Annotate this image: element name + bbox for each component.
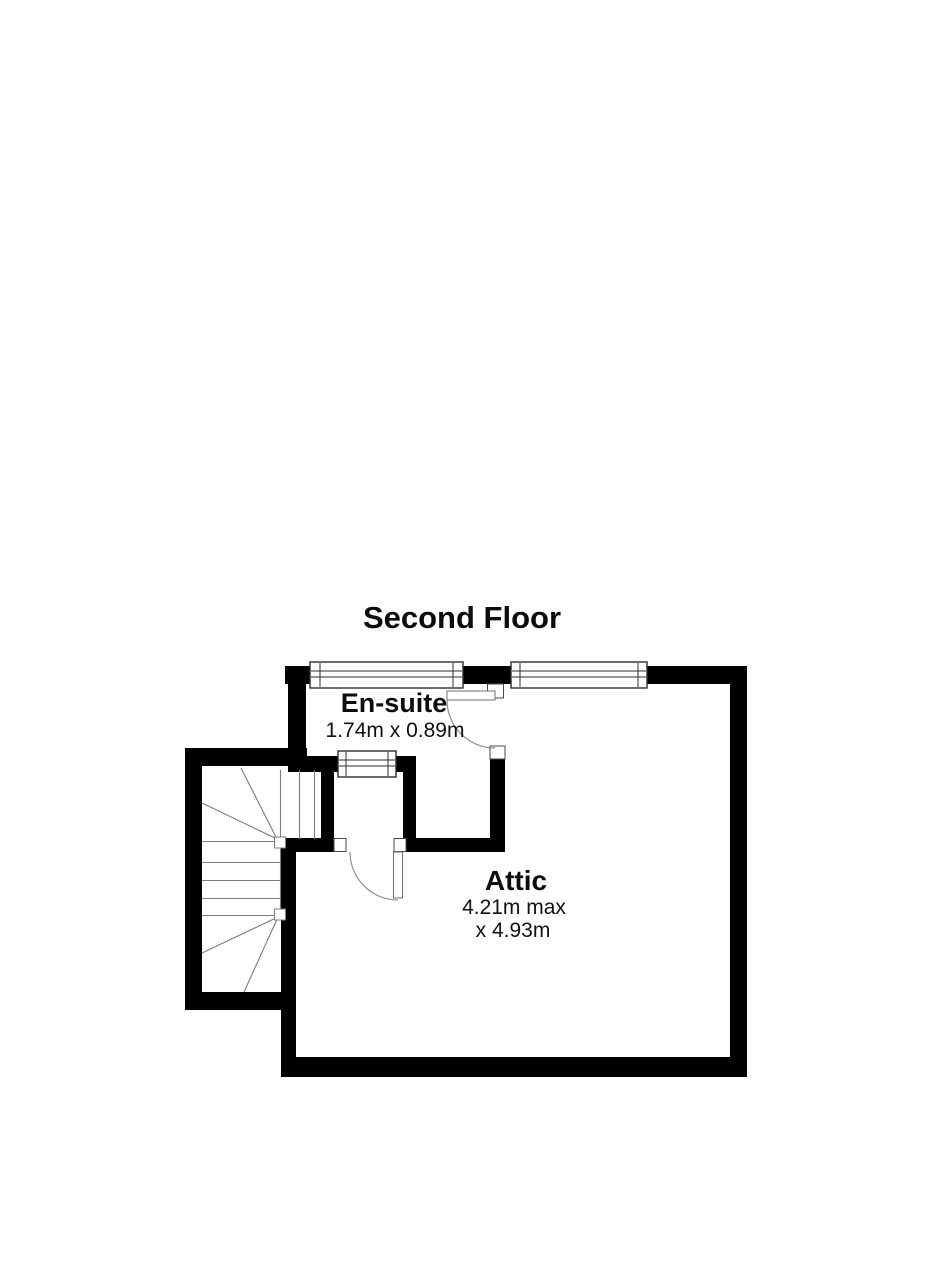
newel-post-lower	[275, 909, 286, 920]
staircase	[202, 768, 315, 992]
newel-post-upper	[275, 837, 286, 848]
attic-dimensions-line2: x 4.93m	[476, 919, 551, 942]
wall-attic-west	[281, 838, 296, 1077]
wall-horizontal-left-seg	[281, 838, 334, 852]
landing-door-arc	[350, 852, 398, 900]
window-top-left	[310, 662, 463, 688]
wall-right	[730, 666, 747, 1077]
wall-stair-left	[185, 748, 202, 1010]
attic-name: Attic	[485, 865, 547, 896]
window-landing	[338, 751, 396, 777]
wall-landing-right	[403, 766, 416, 842]
landing-door-left-jamb	[334, 839, 346, 852]
landing-door-right-jamb	[394, 839, 406, 852]
floorplan-page: Second Floor En-suite 1.74m x 0.89m Atti…	[0, 0, 931, 1280]
window-top-right	[511, 662, 647, 688]
walls	[185, 666, 747, 1077]
landing-door	[334, 839, 406, 901]
wall-stair-landing-divider	[321, 766, 334, 842]
ensuite-name: En-suite	[341, 688, 448, 718]
wall-ensuite-door-pier	[490, 758, 505, 852]
floor-title: Second Floor	[363, 600, 561, 635]
landing-door-leaf	[394, 852, 403, 898]
ensuite-door-leaf	[447, 691, 495, 700]
wall-top-mid-seg	[462, 666, 511, 684]
wall-bottom	[281, 1057, 747, 1077]
floorplan-svg: Second Floor En-suite 1.74m x 0.89m Atti…	[0, 0, 931, 1280]
wall-ensuite-left	[288, 666, 306, 766]
ensuite-dimensions: 1.74m x 0.89m	[326, 719, 465, 742]
attic-label: Attic 4.21m max x 4.93m	[462, 865, 566, 942]
attic-dimensions-line1: 4.21m max	[462, 896, 566, 919]
ensuite-label: En-suite 1.74m x 0.89m	[326, 688, 465, 742]
